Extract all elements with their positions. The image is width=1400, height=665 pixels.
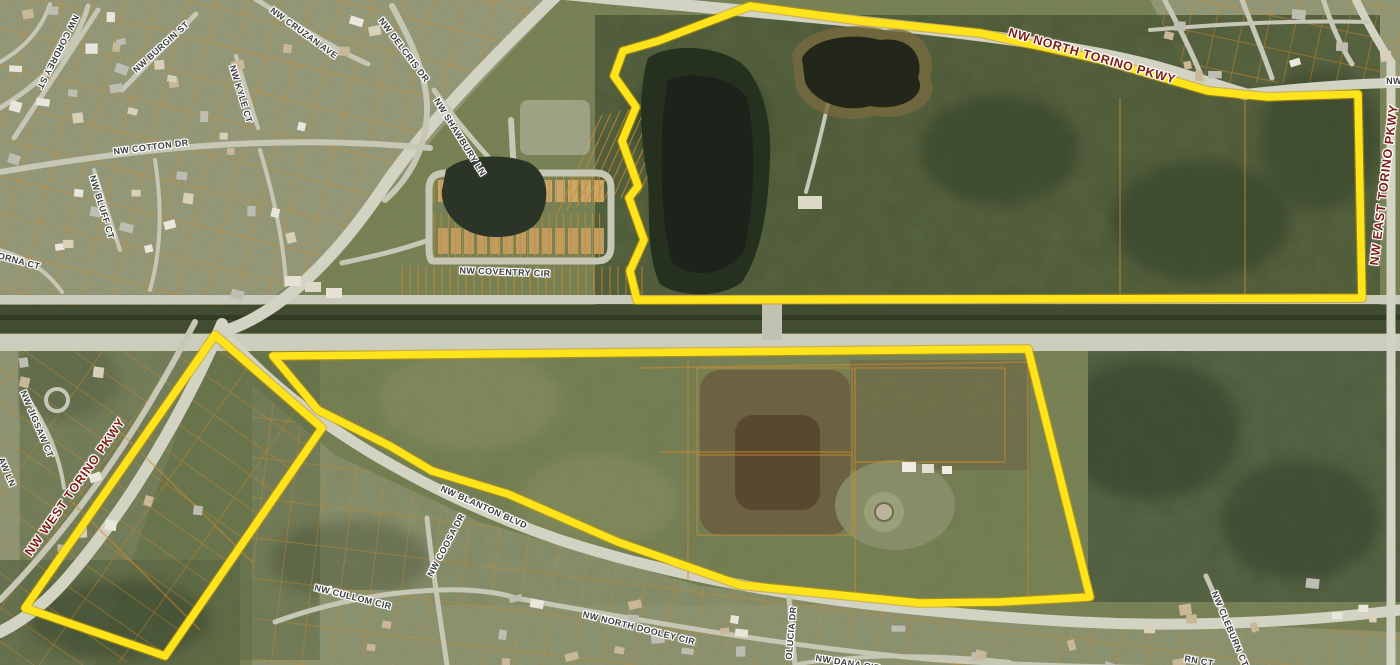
townhome [568,180,578,202]
house [176,171,187,180]
house [339,47,350,56]
house [498,629,507,640]
house [736,646,746,656]
townhome [581,228,591,254]
townhome [594,228,604,254]
house [1380,51,1392,62]
townhome [581,180,591,202]
townhome [568,228,578,254]
house [193,505,203,515]
satellite-imagery [0,0,1400,665]
house [1369,614,1376,623]
house [247,206,255,216]
townhome [438,228,448,254]
house [200,111,208,122]
house [219,133,227,140]
house [891,625,905,631]
house [720,627,730,634]
house [1358,605,1368,612]
house [366,644,375,652]
house [183,193,194,205]
house [1186,614,1197,623]
house [107,12,116,22]
house [72,112,84,123]
house [22,9,34,20]
house [131,190,140,197]
townhome [542,228,552,254]
house [1183,61,1192,70]
house [627,614,639,623]
townhome [529,228,539,254]
house [1195,70,1203,81]
house [154,60,165,70]
house [1179,603,1193,615]
house [502,658,510,665]
house [325,585,334,594]
house [93,367,105,379]
house [63,240,74,248]
house [9,65,22,72]
house [74,189,84,198]
house [19,357,29,368]
house [231,68,240,75]
house [167,75,177,83]
aerial-map: NW NORTH TORINO PKWYNW EAST TORINO PKWYN… [0,0,1400,665]
house [68,89,78,97]
house [227,148,235,155]
house [1336,42,1348,51]
house [105,519,118,531]
house [85,43,97,53]
house [651,634,665,643]
house [735,628,749,637]
house [730,615,739,624]
house [1305,578,1319,589]
house [382,620,392,629]
house [1208,71,1222,78]
house [1332,612,1342,619]
house [283,44,292,54]
house [1291,9,1306,20]
house [1174,21,1186,31]
house [1144,625,1155,634]
house [48,6,58,15]
